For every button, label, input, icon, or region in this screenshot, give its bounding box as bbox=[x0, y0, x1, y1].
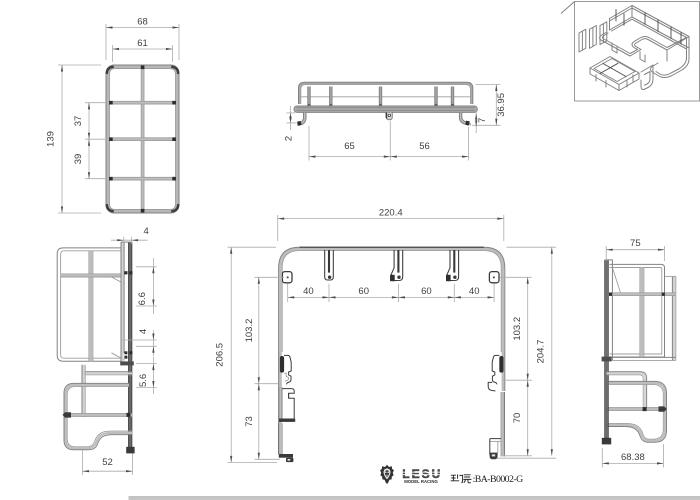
svg-text:7: 7 bbox=[477, 118, 488, 123]
svg-text:103.2: 103.2 bbox=[244, 319, 255, 343]
svg-text:60: 60 bbox=[421, 286, 432, 297]
svg-text:4: 4 bbox=[144, 226, 149, 237]
svg-text:4: 4 bbox=[138, 329, 149, 334]
svg-text:68: 68 bbox=[137, 16, 148, 27]
svg-text::BA-B0002-G: :BA-B0002-G bbox=[473, 474, 523, 485]
svg-text:61: 61 bbox=[137, 38, 148, 49]
svg-text:65: 65 bbox=[344, 141, 355, 152]
svg-text:40: 40 bbox=[303, 286, 314, 297]
svg-text:2: 2 bbox=[284, 136, 295, 141]
svg-text:52: 52 bbox=[102, 457, 113, 468]
svg-text:36.95: 36.95 bbox=[496, 93, 507, 117]
svg-text:204.7: 204.7 bbox=[536, 340, 547, 364]
svg-text:75: 75 bbox=[630, 238, 641, 249]
svg-text:39: 39 bbox=[73, 154, 84, 165]
svg-text:68.38: 68.38 bbox=[621, 452, 645, 463]
svg-text:60: 60 bbox=[358, 286, 369, 297]
svg-text:220.4: 220.4 bbox=[379, 207, 403, 218]
svg-text:73: 73 bbox=[244, 416, 255, 427]
svg-text:40: 40 bbox=[469, 286, 480, 297]
svg-text:5.6: 5.6 bbox=[138, 374, 149, 387]
svg-text:56: 56 bbox=[419, 141, 430, 152]
svg-text:103.2: 103.2 bbox=[512, 317, 523, 341]
svg-text:37: 37 bbox=[73, 116, 84, 127]
svg-text:206.5: 206.5 bbox=[215, 343, 226, 367]
svg-text:MODEL RACING: MODEL RACING bbox=[404, 479, 438, 484]
svg-text:6.6: 6.6 bbox=[137, 292, 148, 305]
svg-text:70: 70 bbox=[512, 413, 523, 424]
svg-text:139: 139 bbox=[46, 131, 57, 147]
